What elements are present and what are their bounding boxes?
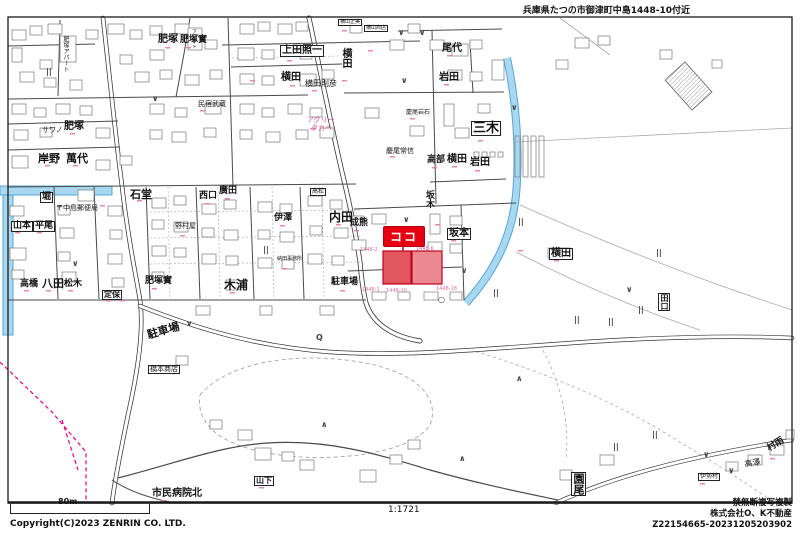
copyright-text: Copyright(C)2023 ZENRIN CO. LTD. (10, 519, 186, 529)
map-canvas[interactable] (0, 0, 800, 536)
field-lines (470, 18, 792, 503)
target-marker[interactable]: ココ (384, 227, 424, 246)
highlight-parcels[interactable] (383, 246, 442, 284)
boundary-line (0, 362, 86, 503)
paddy-strips (474, 136, 544, 177)
company-name: 株式会社O、K不動産 (652, 509, 792, 520)
parcel-lines (150, 56, 360, 298)
scale-bar (10, 504, 150, 514)
scale-ratio: 1:1721 (388, 505, 420, 515)
field-outline (200, 358, 433, 457)
map-title: 兵庫県たつの市御津町中島1448-10付近 (523, 3, 690, 16)
water-layer (0, 58, 518, 335)
serial-number: Z22154665-20231205203902 (652, 520, 792, 531)
hatched-building (665, 62, 712, 110)
no-copy-notice: 禁無断複写複製 (652, 498, 792, 509)
credits-block: 禁無断複写複製 株式会社O、K不動産 Z22154665-20231205203… (652, 498, 792, 531)
scale-bar-label: 80m (58, 497, 77, 506)
map-page: 肥塚肥塚實肥塚アパートアパート肥塚サワノ岸野萬代堀〒中島郵便局山本平尾八田高橋松… (0, 0, 800, 536)
